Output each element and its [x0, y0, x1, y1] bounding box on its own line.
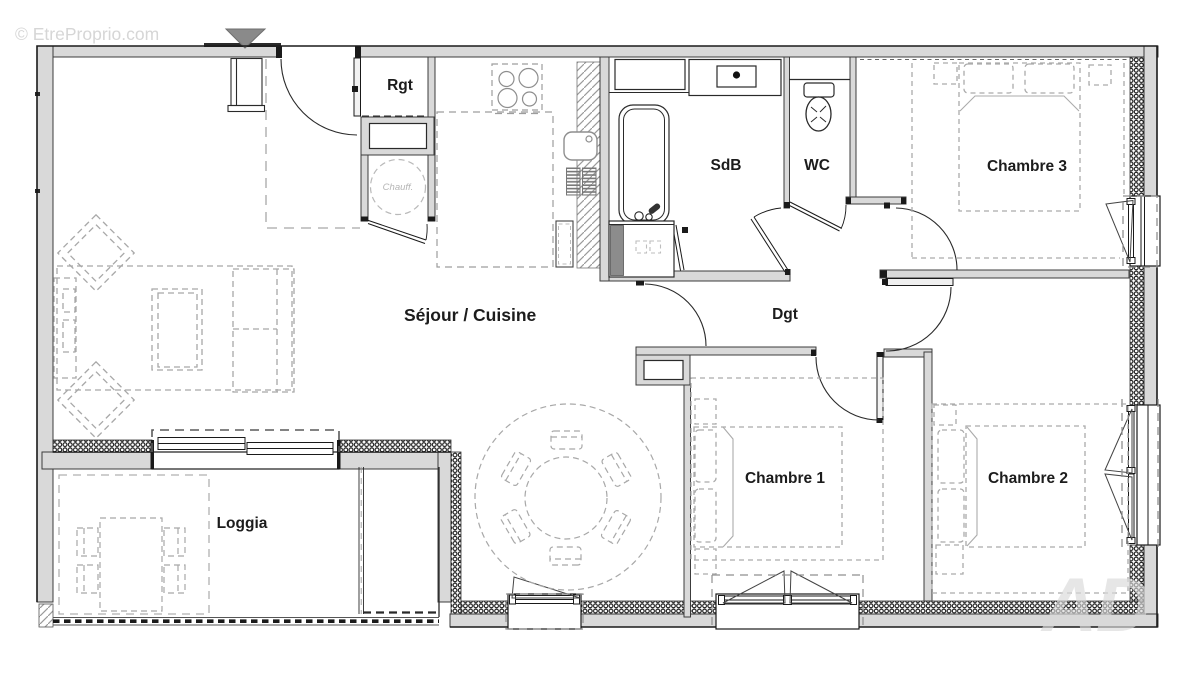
svg-text:WC: WC: [804, 157, 830, 174]
svg-text:Chauff.: Chauff.: [383, 182, 414, 193]
svg-text:Loggia: Loggia: [217, 515, 268, 532]
svg-text:SdB: SdB: [711, 157, 742, 174]
svg-text:© EtreProprio.com: © EtreProprio.com: [15, 24, 159, 44]
svg-text:AD: AD: [1040, 563, 1150, 648]
svg-text:Chambre 1: Chambre 1: [745, 470, 825, 487]
svg-text:Chambre 3: Chambre 3: [987, 158, 1067, 175]
svg-text:Dgt: Dgt: [772, 306, 798, 323]
svg-text:Séjour / Cuisine: Séjour / Cuisine: [404, 305, 537, 325]
svg-text:Chambre 2: Chambre 2: [988, 470, 1068, 487]
svg-text:Rgt: Rgt: [387, 77, 413, 94]
